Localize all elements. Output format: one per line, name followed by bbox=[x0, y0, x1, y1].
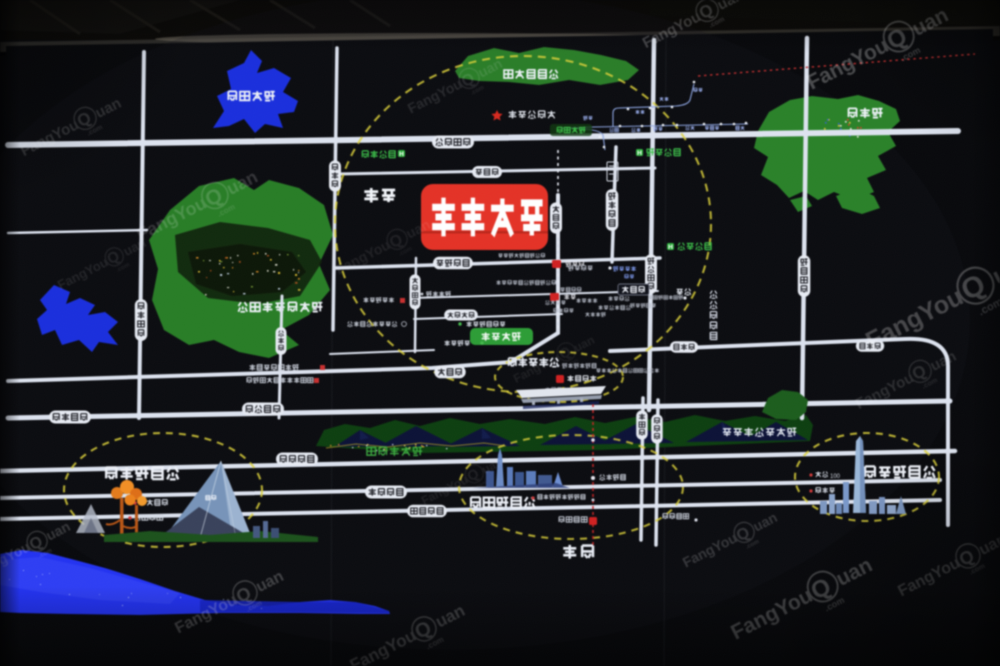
svg-text:100: 100 bbox=[830, 474, 841, 480]
svg-text:H: H bbox=[637, 150, 642, 157]
svg-text:H: H bbox=[668, 244, 673, 251]
svg-text:H: H bbox=[399, 151, 404, 158]
